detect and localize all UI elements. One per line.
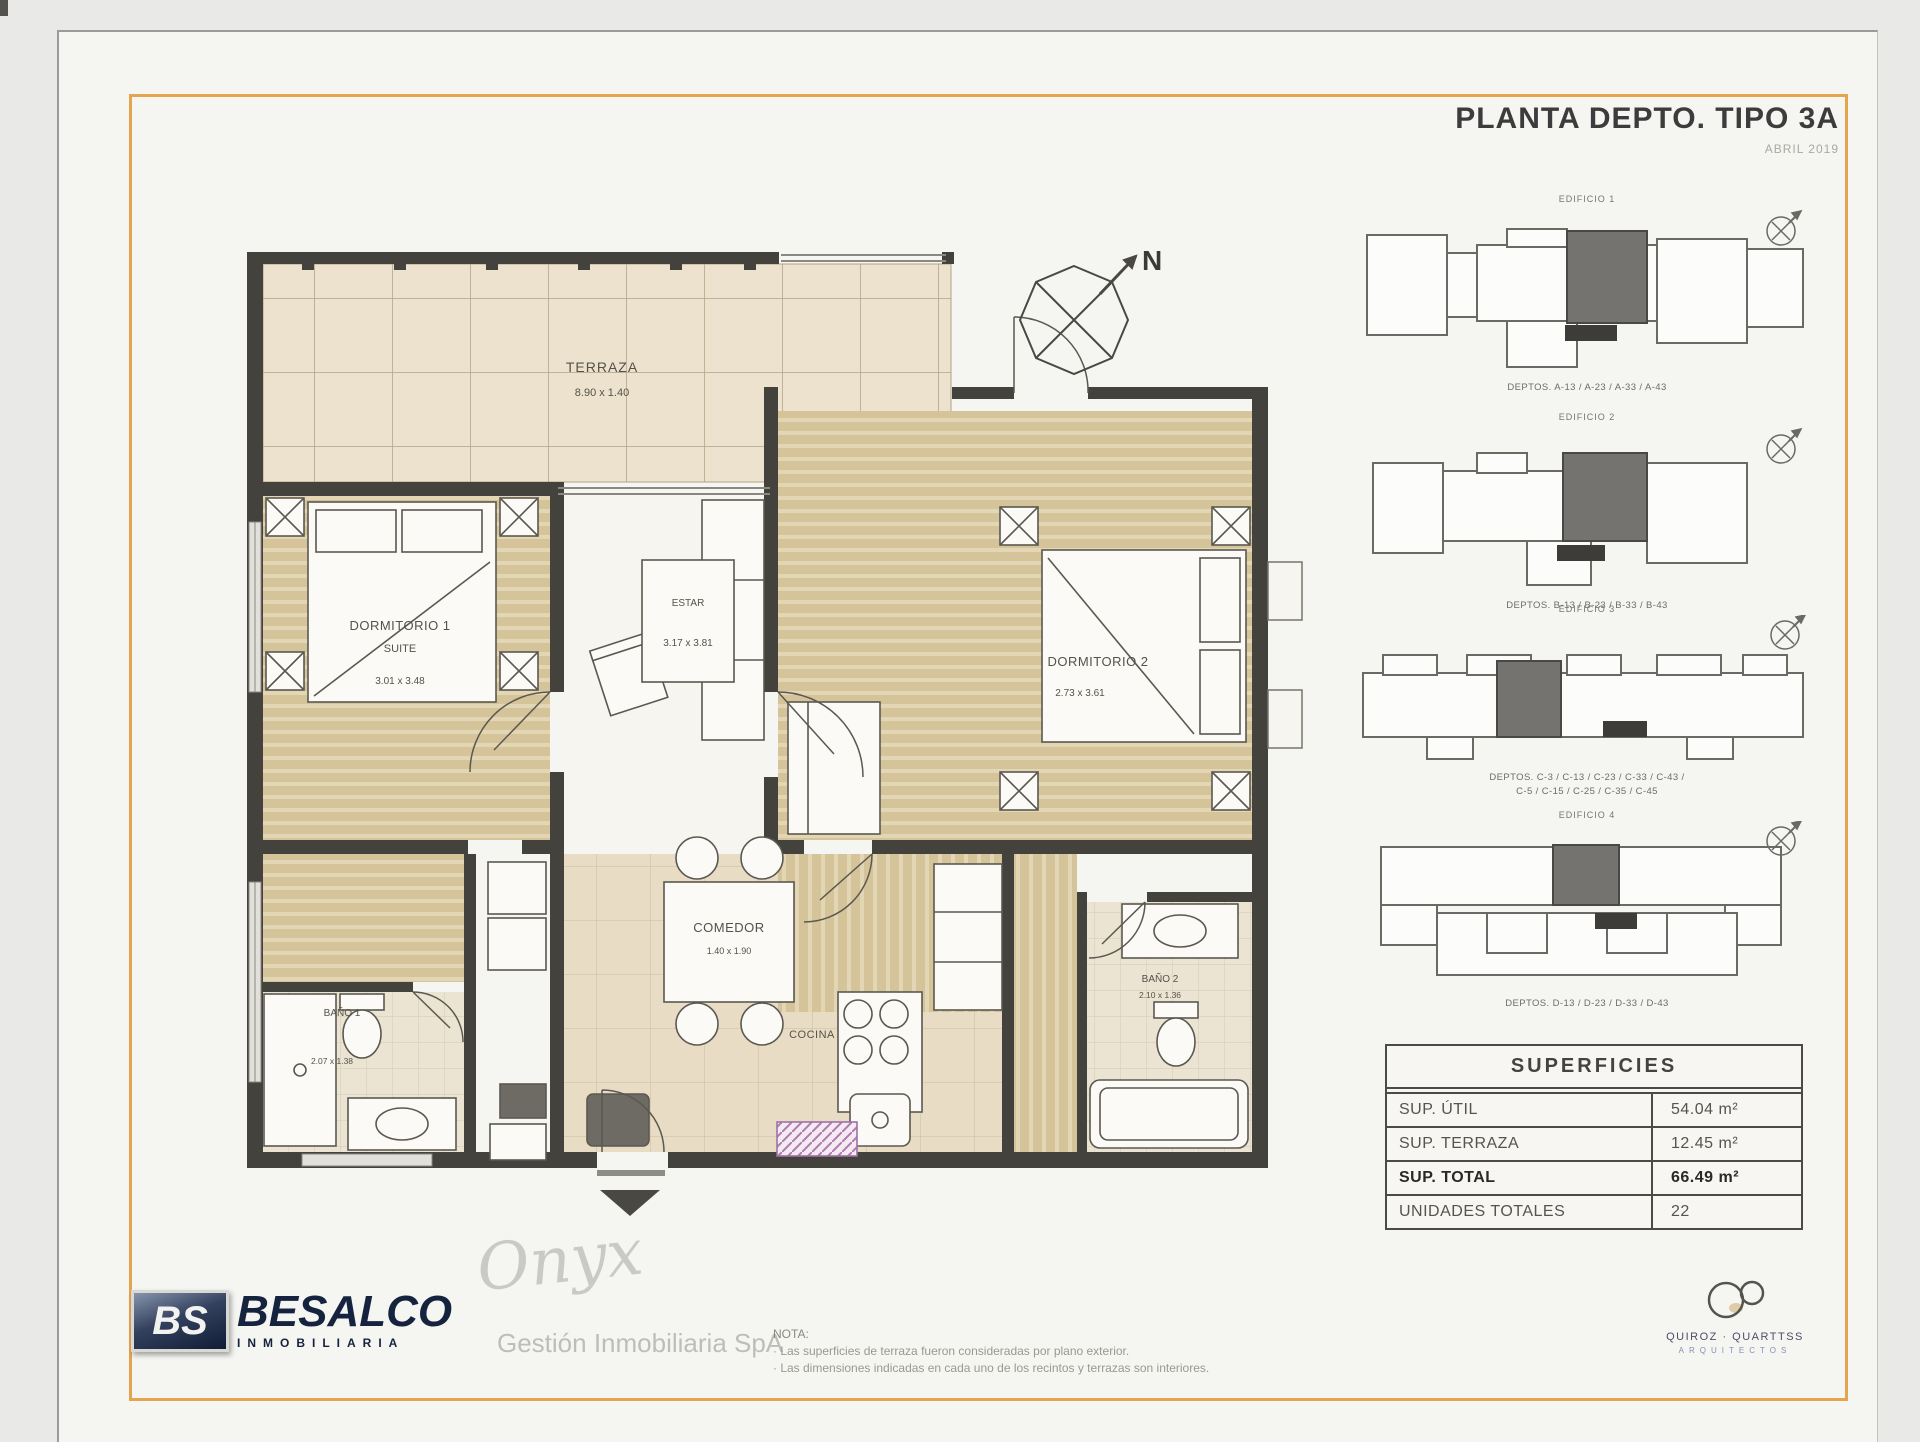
superficies-rows: SUP. ÚTIL 54.04 m² SUP. TERRAZA 12.45 m²… [1387,1092,1801,1228]
terraza-label: TERRAZA [566,359,638,375]
page-title: PLANTA DEPTO. TIPO 3A [1039,102,1839,136]
keyplan-edificio-4: EDIFICIO 4 DEPTOS. D-13 / D-23 / D-33 / … [1337,810,1837,1010]
bano2-dims: 2.10 x 1.36 [1139,990,1181,1000]
keyplan-edificio-1: EDIFICIO 1 DEPTOS. A-13 / A-23 / A-33 / … [1337,194,1837,394]
pasillo-floor [1014,854,1077,1152]
architect-name: QUIROZ · QUARTTSS [1617,1331,1853,1343]
keyplan-caption2: C-5 / C-15 / C-25 / C-35 / C-45 [1337,785,1837,798]
bs-logo-text: BESALCO INMOBILIARIA [237,1290,452,1350]
bano1-dims: 2.07 x 1.38 [311,1056,353,1066]
keyplan-footprint [1357,615,1817,765]
desk [788,702,880,834]
keyplan-footprint [1357,423,1817,593]
nota-line: · Las dimensiones indicadas en cada uno … [773,1360,1209,1377]
comedor-dims: 1.40 x 1.90 [707,946,752,956]
closet-floor [263,854,464,982]
nota-block: NOTA: · Las superficies de terraza fuero… [773,1326,1209,1377]
dormitorio1-sub: SUITE [384,643,416,655]
row-value: 22 [1651,1196,1801,1228]
gestion-text: Gestión Inmobiliaria SpA [497,1328,783,1359]
keyplan-edificio-2: EDIFICIO 2 DEPTOS. B-13 / B-23 / B-33 / … [1337,412,1837,612]
row-label: SUP. TOTAL [1387,1162,1651,1194]
comedor-label: COMEDOR [693,920,764,935]
qp-logo-icon [1700,1278,1770,1322]
keyplan-label: EDIFICIO 1 [1337,194,1837,204]
keyplan-caption: DEPTOS. C-3 / C-13 / C-23 / C-33 / C-43 … [1337,771,1837,784]
keyplan-label: EDIFICIO 4 [1337,810,1837,820]
coffee-table [642,560,734,682]
keyplan-edificio-3: EDIFICIO 3 DEPTOS. C-3 / C-13 / C-23 / C… [1337,604,1837,798]
row-value: 66.49 m² [1651,1162,1801,1194]
nota-title: NOTA: [773,1326,1209,1343]
terraza-dims: 8.90 x 1.40 [575,387,629,399]
mini-compass-icon [1767,211,1801,245]
cocina-label: COCINA [789,1029,835,1041]
page-subtitle: ABRIL 2019 [1039,142,1839,156]
architect-logo-block: QUIROZ · QUARTTSS ARQUITECTOS [1617,1278,1853,1355]
north-compass-icon [1020,256,1136,374]
estar-label: ESTAR [672,598,705,609]
row-value: 54.04 m² [1651,1094,1801,1126]
bs-logo-icon: BS [131,1290,229,1352]
keyplan-footprint [1357,205,1817,375]
brand-name: BESALCO [237,1290,452,1334]
row-label: UNIDADES TOTALES [1387,1196,1651,1228]
nota-line: · Las superficies de terraza fueron cons… [773,1343,1209,1360]
mini-compass-icon [1767,429,1801,463]
bed-dorm1 [308,502,496,702]
dormitorio1-label: DORMITORIO 1 [349,618,450,633]
bano2-label: BAÑO 2 [1142,972,1179,985]
keyplan-label: EDIFICIO 3 [1337,604,1837,614]
bed-dorm2 [1042,550,1246,742]
dormitorio2-label: DORMITORIO 2 [1047,654,1148,669]
laundry-hatch [777,1122,857,1156]
row-value: 12.45 m² [1651,1128,1801,1160]
keyplan-caption: DEPTOS. D-13 / D-23 / D-33 / D-43 [1337,997,1837,1010]
mini-compass-icon [1767,821,1801,855]
table-row: SUP. TERRAZA 12.45 m² [1387,1126,1801,1160]
superficies-title: SUPERFICIES [1387,1046,1801,1089]
row-label: SUP. TERRAZA [1387,1128,1651,1160]
keyplan-caption: DEPTOS. A-13 / A-23 / A-33 / A-43 [1337,381,1837,394]
floorplan: N TERRAZA 8.90 x 1.40 DORMITORIO 1 SUITE… [202,192,1322,1242]
row-label: SUP. ÚTIL [1387,1094,1651,1126]
keyplan-label: EDIFICIO 2 [1337,412,1837,422]
architect-subtitle: ARQUITECTOS [1617,1346,1853,1355]
table-row-total: SUP. TOTAL 66.49 m² [1387,1160,1801,1194]
besalco-logo: BS BESALCO INMOBILIARIA [131,1290,452,1352]
compass-n-label: N [1142,245,1162,276]
superficies-table: SUPERFICIES SUP. ÚTIL 54.04 m² SUP. TERR… [1385,1044,1803,1230]
closet [488,862,546,1160]
bano1-label: BAÑO 1 [324,1006,361,1019]
brand-subtitle: INMOBILIARIA [237,1336,452,1350]
mini-compass-icon [1771,615,1805,649]
dormitorio1-dims: 3.01 x 3.48 [375,676,425,687]
estar-dims: 3.17 x 3.81 [663,638,713,649]
scan-corner-mark [0,0,8,16]
keyplan-footprint [1357,821,1817,991]
sheet: PLANTA DEPTO. TIPO 3A ABRIL 2019 [57,30,1878,1442]
table-row: SUP. ÚTIL 54.04 m² [1387,1094,1801,1126]
entry-arrow-icon [597,1170,665,1216]
dormitorio2-dims: 2.73 x 3.61 [1055,688,1105,699]
wall-bumps [1268,562,1302,748]
table-row: UNIDADES TOTALES 22 [1387,1194,1801,1228]
title-block: PLANTA DEPTO. TIPO 3A ABRIL 2019 [1039,102,1839,156]
